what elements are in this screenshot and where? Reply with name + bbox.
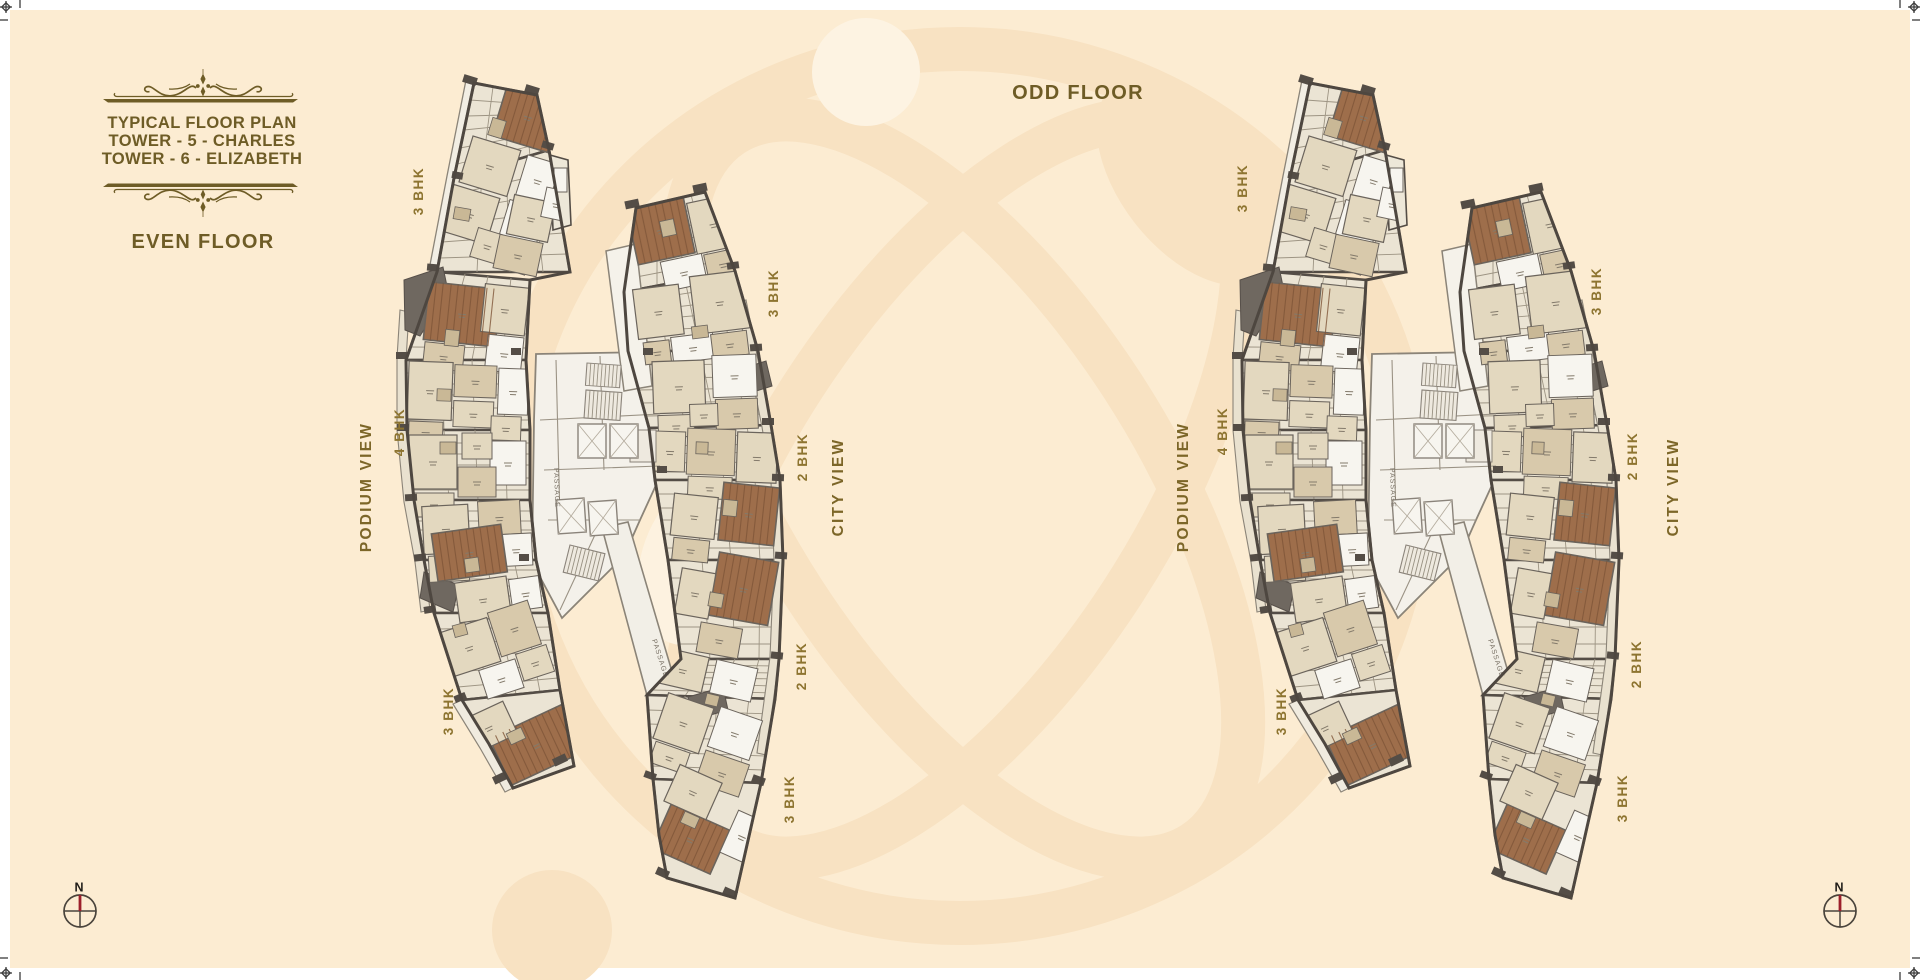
svg-text:2 BHK: 2 BHK	[1625, 432, 1640, 481]
svg-text:4 BHK: 4 BHK	[1215, 407, 1230, 456]
svg-text:N: N	[1834, 881, 1843, 895]
svg-text:PODIUM VIEW: PODIUM VIEW	[1175, 422, 1192, 552]
svg-text:3 BHK: 3 BHK	[1589, 267, 1604, 316]
svg-text:2 BHK: 2 BHK	[794, 642, 809, 691]
svg-text:3 BHK: 3 BHK	[1615, 774, 1630, 823]
svg-text:2 BHK: 2 BHK	[1629, 640, 1644, 689]
svg-text:N: N	[74, 881, 83, 895]
svg-text:TOWER - 5 - CHARLES: TOWER - 5 - CHARLES	[109, 132, 296, 150]
svg-text:3 BHK: 3 BHK	[782, 775, 797, 824]
svg-text:CITY VIEW: CITY VIEW	[1665, 438, 1682, 537]
svg-text:4 BHK: 4 BHK	[392, 408, 407, 457]
svg-text:CITY VIEW: CITY VIEW	[830, 438, 847, 537]
svg-text:3 BHK: 3 BHK	[441, 687, 456, 736]
svg-text:PASSAGE: PASSAGE	[552, 468, 560, 508]
svg-text:3 BHK: 3 BHK	[1235, 164, 1250, 213]
svg-text:EVEN FLOOR: EVEN FLOOR	[131, 231, 274, 253]
svg-text:3 BHK: 3 BHK	[766, 269, 781, 318]
svg-text:ODD FLOOR: ODD FLOOR	[1012, 82, 1144, 104]
svg-text:3 BHK: 3 BHK	[1274, 687, 1289, 736]
svg-text:TOWER - 6 - ELIZABETH: TOWER - 6 - ELIZABETH	[102, 150, 303, 168]
svg-text:TYPICAL FLOOR PLAN: TYPICAL FLOOR PLAN	[107, 114, 296, 132]
svg-text:3 BHK: 3 BHK	[411, 167, 426, 216]
svg-text:2 BHK: 2 BHK	[795, 433, 810, 482]
svg-text:PODIUM VIEW: PODIUM VIEW	[358, 422, 375, 552]
